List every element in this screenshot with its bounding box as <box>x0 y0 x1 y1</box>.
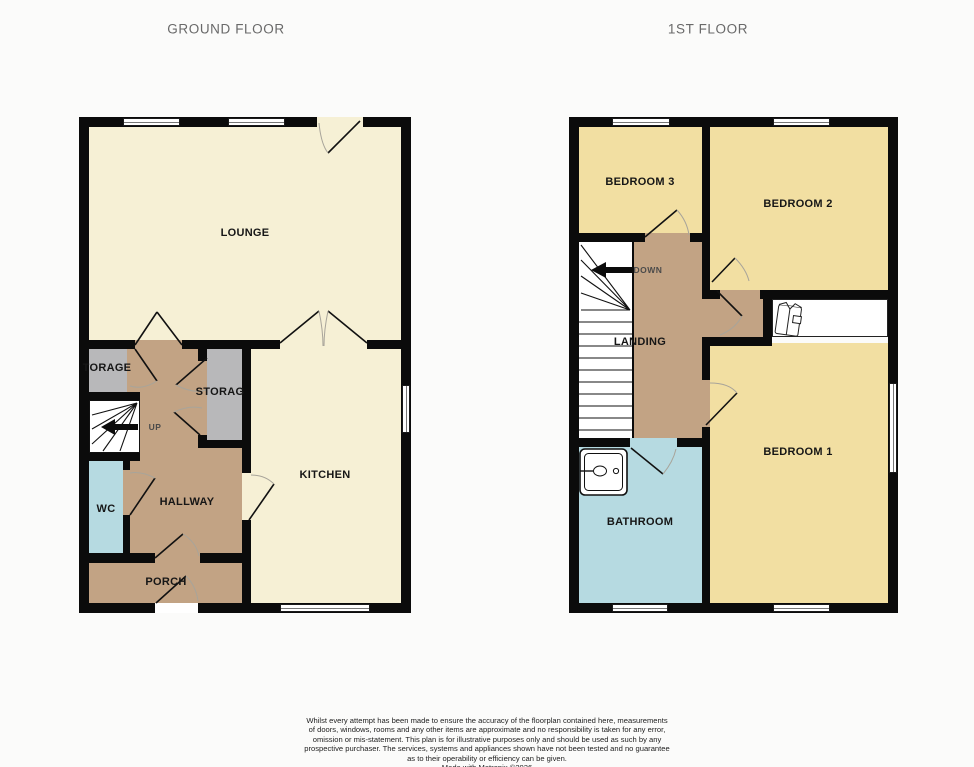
down-label: DOWN <box>634 265 663 275</box>
room-bedroom1 <box>710 343 888 603</box>
wall <box>89 453 140 461</box>
window <box>402 385 410 433</box>
window <box>889 383 897 473</box>
storage-right-label: STORAG <box>196 386 245 398</box>
wall <box>198 349 207 361</box>
window <box>612 604 668 612</box>
wall <box>123 515 130 553</box>
bathroom-label: BATHROOM <box>607 516 673 528</box>
window <box>612 118 670 126</box>
window <box>773 118 830 126</box>
landing-label: LANDING <box>614 336 666 348</box>
ground-floor-plan: LOUNGE KITCHEN HALLWAY PORCH WC TORAGE S… <box>79 117 411 613</box>
disclaimer-line: as to their operability or efficiency ca… <box>277 754 697 763</box>
wall <box>89 553 155 563</box>
wall <box>763 299 772 337</box>
wall <box>702 290 720 299</box>
bathroom-door-opening <box>630 438 677 447</box>
front-door-opening <box>317 117 363 127</box>
wall <box>579 233 645 242</box>
wall <box>569 117 579 613</box>
wall <box>242 349 251 473</box>
disclaimer-line: omission or mis-statement. This plan is … <box>277 735 697 744</box>
room-landing-vestibule <box>710 299 763 337</box>
wall <box>200 553 242 563</box>
wall <box>367 340 401 349</box>
bedroom2-door-opening <box>720 290 760 299</box>
metropix-credit: Made with Metropix ©2026 <box>277 763 697 767</box>
wall <box>579 438 630 447</box>
disclaimer-line: prospective purchaser. The services, sys… <box>277 744 697 753</box>
wall <box>702 127 710 290</box>
hallway-label: HALLWAY <box>160 496 215 508</box>
wall <box>242 520 251 603</box>
french-door-opening <box>280 340 367 349</box>
bedroom3-door-opening <box>645 233 690 242</box>
wall <box>182 340 280 349</box>
floorplan-page: GROUND FLOOR 1ST FLOOR <box>0 0 974 767</box>
first-floor-title: 1ST FLOOR <box>668 22 748 37</box>
hall-door-opening <box>135 340 182 349</box>
wall <box>702 346 710 380</box>
wall <box>702 427 710 603</box>
wall <box>677 438 710 447</box>
kitchen-door-opening <box>242 473 251 520</box>
porch-label: PORCH <box>145 576 186 588</box>
wall <box>200 440 242 448</box>
wc-door-opening <box>123 470 130 515</box>
window <box>280 604 370 612</box>
wc-label: WC <box>97 503 116 515</box>
lounge-label: LOUNGE <box>221 227 270 239</box>
wall <box>89 392 140 400</box>
kitchen-label: KITCHEN <box>300 469 351 481</box>
wall <box>760 290 888 299</box>
storage-left-label: TORAGE <box>83 362 132 374</box>
first-floor-plan: BEDROOM 3 BEDROOM 2 BEDROOM 1 LANDING BA… <box>569 117 898 613</box>
wall <box>401 117 411 613</box>
wall <box>123 461 130 470</box>
ground-floor-title: GROUND FLOOR <box>167 22 284 37</box>
wall <box>89 340 135 349</box>
disclaimer: Whilst every attempt has been made to en… <box>277 716 697 767</box>
window <box>773 604 830 612</box>
window <box>123 118 180 126</box>
disclaimer-line: Whilst every attempt has been made to en… <box>277 716 697 725</box>
bedroom1-label: BEDROOM 1 <box>763 446 832 458</box>
wall <box>702 337 772 346</box>
bedroom2-label: BEDROOM 2 <box>763 198 832 210</box>
bedroom3-label: BEDROOM 3 <box>605 176 674 188</box>
built-in-wardrobe <box>772 299 888 337</box>
stairs-up <box>89 400 140 453</box>
disclaimer-line: of doors, windows, rooms and any other i… <box>277 725 697 734</box>
storage-door-gap <box>198 361 207 435</box>
window <box>228 118 285 126</box>
exterior-door-opening <box>155 603 198 613</box>
bedroom1-door-opening <box>702 380 710 427</box>
up-label: UP <box>149 422 162 432</box>
wall <box>888 117 898 613</box>
porch-door-opening <box>155 553 200 563</box>
